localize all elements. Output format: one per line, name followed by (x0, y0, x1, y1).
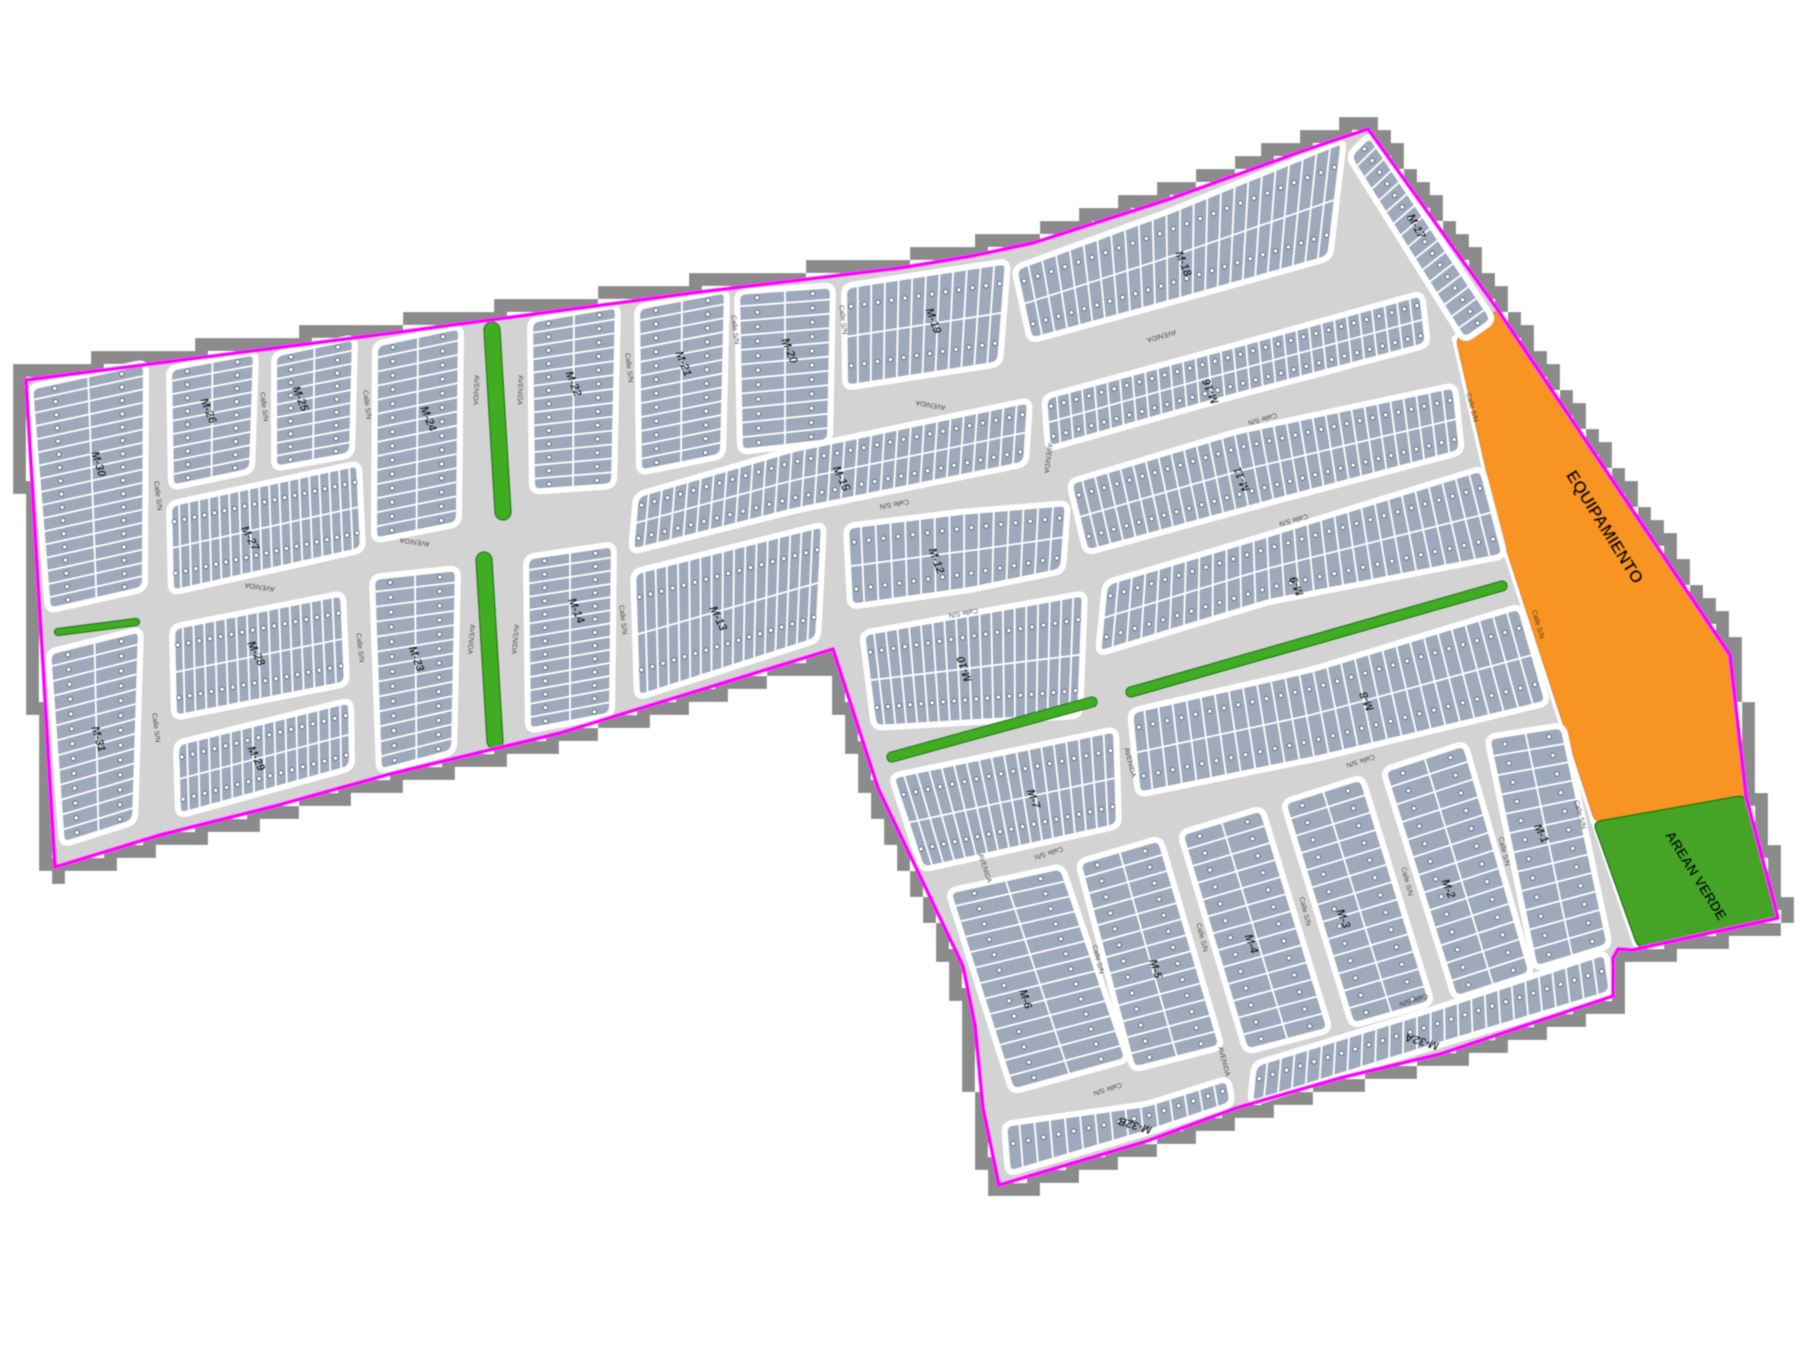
svg-text:AVENIDA: AVENIDA (471, 375, 479, 406)
svg-text:AVENIDA: AVENIDA (515, 375, 523, 406)
